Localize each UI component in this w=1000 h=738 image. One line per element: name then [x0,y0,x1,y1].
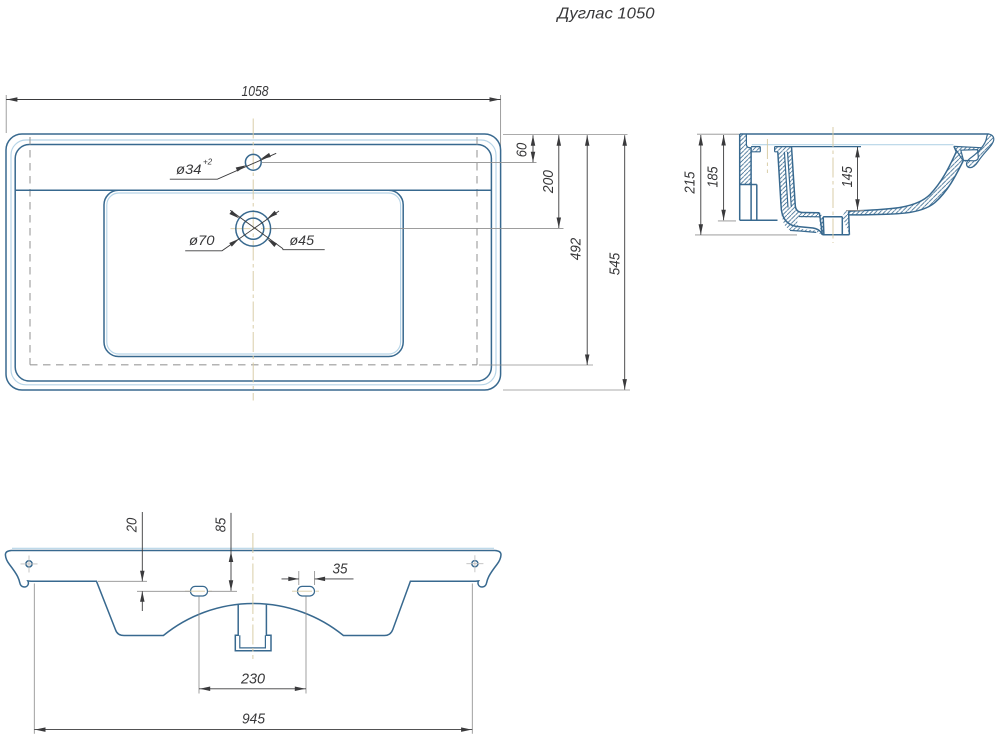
svg-text:ø45: ø45 [290,232,315,248]
svg-text:185: 185 [704,166,721,188]
svg-text:145: 145 [839,166,856,188]
svg-text:945: 945 [242,711,266,728]
svg-text:492: 492 [567,237,584,260]
svg-text:ø34: ø34 [176,161,202,177]
svg-text:230: 230 [240,671,266,688]
svg-text:200: 200 [540,169,557,194]
svg-text:215: 215 [682,171,699,194]
svg-text:20: 20 [124,517,141,533]
svg-text:1058: 1058 [242,83,270,100]
svg-text:85: 85 [212,517,229,532]
svg-text:+2: +2 [203,157,213,166]
svg-text:Дуглас 1050: Дуглас 1050 [555,6,654,23]
svg-text:60: 60 [514,142,531,157]
svg-text:ø70: ø70 [189,232,215,248]
svg-text:545: 545 [607,252,624,275]
svg-text:35: 35 [333,561,349,578]
